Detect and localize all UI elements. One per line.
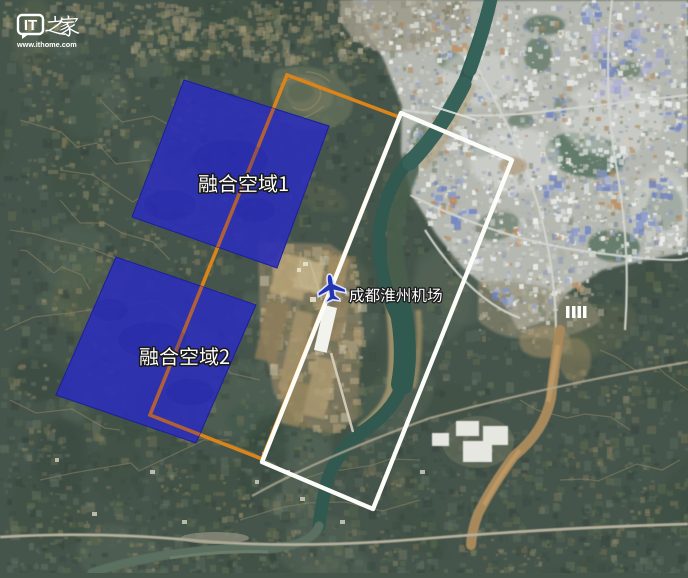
svg-text:IT: IT [24, 17, 37, 34]
svg-text:www.ithome.com: www.ithome.com [16, 40, 77, 49]
